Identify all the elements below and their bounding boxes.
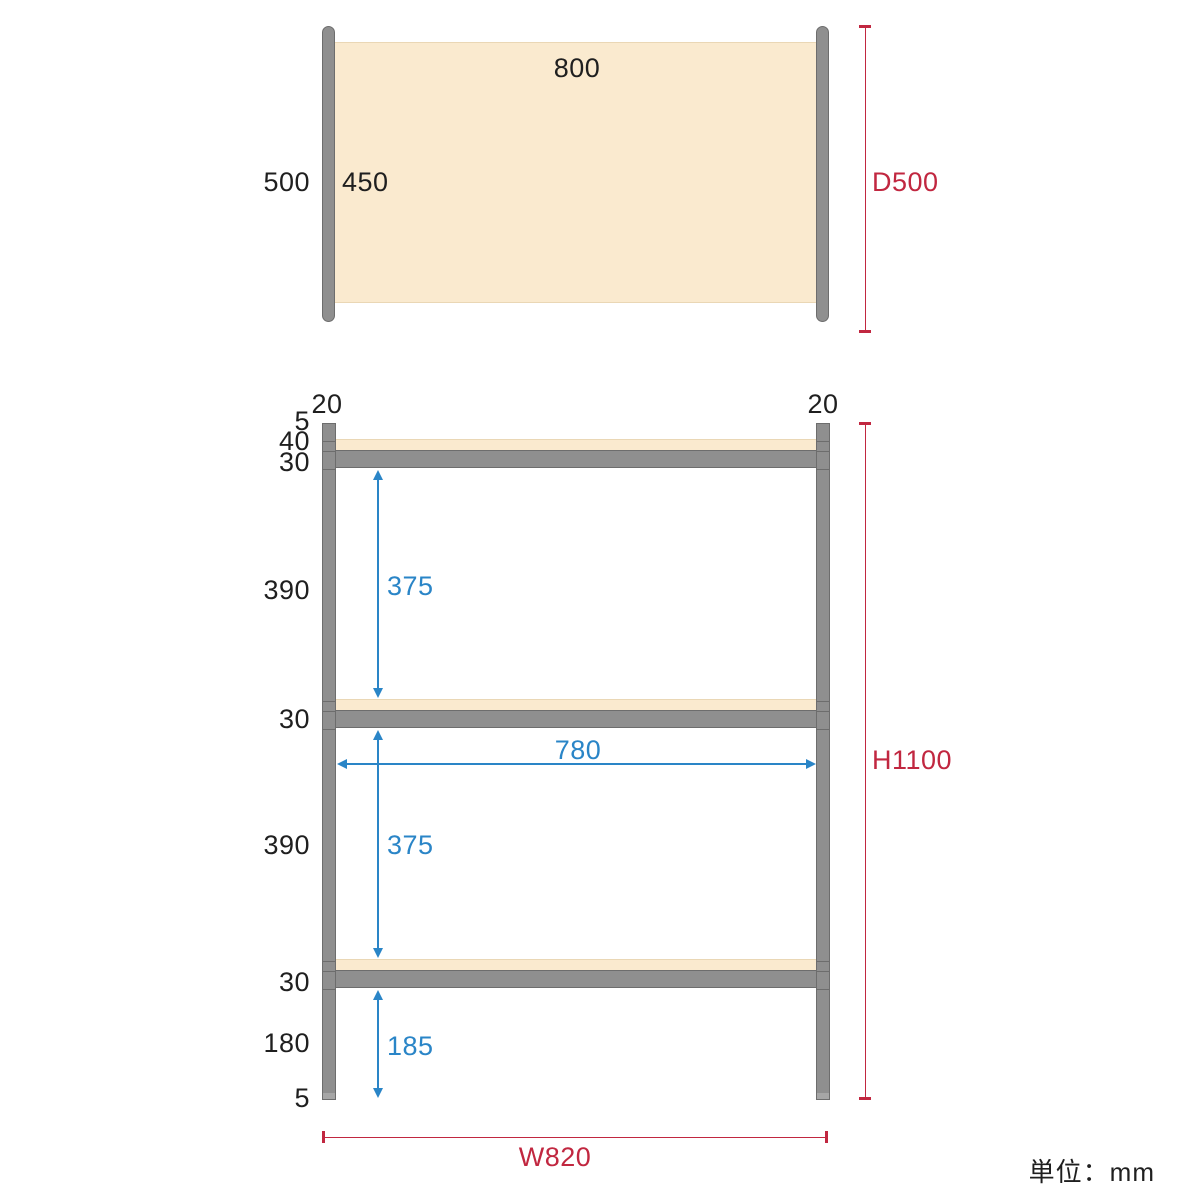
depth-dimension-line xyxy=(858,25,872,333)
shelf-dimension-diagram: 800 500 450 D500 20 20 5 40 30 390 30 39… xyxy=(0,0,1200,1200)
top-shelf-rail xyxy=(336,450,816,468)
front-view-right-post xyxy=(816,423,830,1100)
segment-label-5-bottom: 5 xyxy=(230,1084,310,1112)
inner-width-label: 780 xyxy=(528,736,628,764)
front-view-left-post xyxy=(322,423,336,1100)
top-view-left-post xyxy=(322,26,335,322)
clearance-label-middle: 375 xyxy=(387,831,434,859)
unit-note: 単位：mm xyxy=(990,1158,1155,1186)
segment-label-390-bot: 390 xyxy=(230,831,310,859)
top-view-width-label: 800 xyxy=(527,54,627,82)
bottom-shelf-board xyxy=(336,959,816,970)
top-view-inner-depth-label: 450 xyxy=(342,168,412,196)
clearance-label-top: 375 xyxy=(387,572,434,600)
segment-label-30-bot: 30 xyxy=(230,968,310,996)
middle-shelf-rail xyxy=(336,710,816,728)
segment-label-30-top: 30 xyxy=(230,448,310,476)
height-dimension-line xyxy=(858,422,872,1100)
top-view-outer-depth-label: 500 xyxy=(240,168,310,196)
top-shelf-board xyxy=(336,439,816,450)
clearance-label-bottom: 185 xyxy=(387,1032,434,1060)
segment-label-180: 180 xyxy=(230,1029,310,1057)
segment-label-390-top: 390 xyxy=(230,576,310,604)
width-dimension-label: W820 xyxy=(505,1143,605,1171)
middle-shelf-board xyxy=(336,699,816,710)
top-view-right-post xyxy=(816,26,829,322)
clearance-arrow-top xyxy=(372,470,384,698)
right-post-width-label: 20 xyxy=(793,390,853,418)
bottom-shelf-rail xyxy=(336,970,816,988)
height-dimension-label: H1100 xyxy=(872,746,952,774)
clearance-arrow-bottom xyxy=(372,990,384,1098)
segment-label-30-mid: 30 xyxy=(230,705,310,733)
depth-dimension-label: D500 xyxy=(872,168,939,196)
